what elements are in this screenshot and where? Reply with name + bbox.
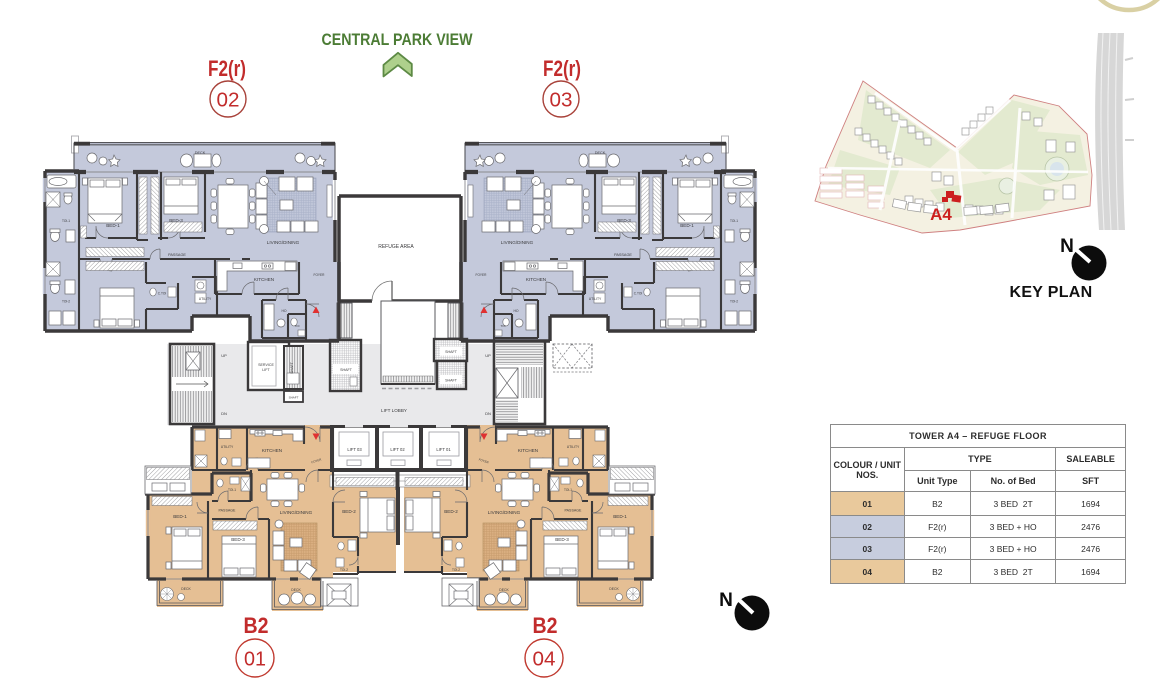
svg-text:UTILITY: UTILITY bbox=[567, 445, 580, 449]
svg-text:LIFT 02: LIFT 02 bbox=[390, 447, 405, 452]
svg-text:BED-1: BED-1 bbox=[680, 223, 694, 228]
svg-text:KITCHEN: KITCHEN bbox=[254, 277, 274, 282]
svg-text:TOI-2: TOI-2 bbox=[730, 300, 738, 304]
svg-text:PASSAGE: PASSAGE bbox=[219, 509, 237, 513]
svg-text:CENTRAL PARK VIEW: CENTRAL PARK VIEW bbox=[322, 30, 474, 49]
svg-text:UTILITY: UTILITY bbox=[221, 445, 234, 449]
svg-text:DN: DN bbox=[485, 411, 491, 416]
svg-text:TOI-2: TOI-2 bbox=[452, 568, 460, 572]
svg-text:REFUGE AREA: REFUGE AREA bbox=[378, 244, 414, 250]
svg-text:F2(r): F2(r) bbox=[208, 56, 246, 81]
svg-text:SHAFT: SHAFT bbox=[340, 368, 353, 372]
svg-text:TOI-2: TOI-2 bbox=[62, 300, 70, 304]
svg-text:B2: B2 bbox=[244, 613, 269, 638]
svg-text:SHAFT: SHAFT bbox=[290, 361, 294, 374]
svg-text:TOI: TOI bbox=[295, 324, 300, 328]
svg-text:PASSAGE: PASSAGE bbox=[614, 253, 632, 257]
svg-text:BED-1: BED-1 bbox=[106, 223, 120, 228]
svg-text:LIFT LOBBY: LIFT LOBBY bbox=[381, 408, 407, 413]
svg-text:N: N bbox=[719, 590, 733, 611]
svg-text:DECK: DECK bbox=[595, 151, 606, 155]
svg-text:LIFT: LIFT bbox=[262, 368, 270, 372]
svg-text:SERVICE: SERVICE bbox=[258, 363, 274, 367]
svg-text:UTILITY: UTILITY bbox=[589, 297, 602, 301]
svg-text:N: N bbox=[1060, 236, 1074, 257]
svg-text:LIFT 01: LIFT 01 bbox=[436, 447, 451, 452]
svg-text:LIVING/DINING: LIVING/DINING bbox=[501, 240, 534, 245]
svg-text:C.TOI: C.TOI bbox=[158, 292, 167, 296]
svg-text:BED-1: BED-1 bbox=[613, 514, 627, 519]
svg-text:BED-2: BED-2 bbox=[342, 509, 356, 514]
svg-text:DECK: DECK bbox=[609, 587, 619, 591]
svg-text:UP: UP bbox=[221, 353, 227, 358]
svg-text:SHAFT: SHAFT bbox=[289, 396, 299, 400]
svg-text:B2: B2 bbox=[533, 613, 558, 638]
svg-text:BED-2: BED-2 bbox=[444, 509, 458, 514]
svg-text:DN: DN bbox=[221, 411, 227, 416]
svg-text:BED-3: BED-3 bbox=[617, 218, 631, 223]
svg-text:KITCHEN: KITCHEN bbox=[518, 448, 538, 453]
svg-text:TOI-2: TOI-2 bbox=[340, 568, 348, 572]
svg-text:HO: HO bbox=[513, 309, 518, 313]
svg-text:01: 01 bbox=[244, 649, 266, 671]
svg-text:LIVING/DINING: LIVING/DINING bbox=[488, 510, 521, 515]
svg-text:TOI-1: TOI-1 bbox=[564, 488, 572, 492]
svg-text:KITCHEN: KITCHEN bbox=[526, 277, 546, 282]
svg-text:BED-1: BED-1 bbox=[173, 514, 187, 519]
svg-text:UP: UP bbox=[485, 353, 491, 358]
svg-text:PASSAGE: PASSAGE bbox=[168, 253, 186, 257]
svg-text:BED-3: BED-3 bbox=[169, 218, 183, 223]
svg-text:DECK: DECK bbox=[181, 587, 191, 591]
svg-text:SHAFT: SHAFT bbox=[445, 379, 458, 383]
svg-text:TOI-1: TOI-1 bbox=[62, 219, 70, 223]
svg-text:TOI-1: TOI-1 bbox=[730, 219, 738, 223]
svg-text:PASSAGE: PASSAGE bbox=[565, 509, 583, 513]
svg-text:TOI-1: TOI-1 bbox=[228, 488, 236, 492]
svg-text:BED-3: BED-3 bbox=[555, 537, 569, 542]
svg-text:LIVING/DINING: LIVING/DINING bbox=[280, 510, 313, 515]
svg-text:KITCHEN: KITCHEN bbox=[262, 448, 282, 453]
svg-text:FOYER: FOYER bbox=[476, 273, 488, 277]
svg-text:TOI: TOI bbox=[501, 324, 506, 328]
svg-text:A4: A4 bbox=[930, 205, 952, 224]
svg-text:SHAFT: SHAFT bbox=[445, 350, 458, 354]
svg-text:UTILITY: UTILITY bbox=[199, 297, 212, 301]
svg-text:04: 04 bbox=[533, 649, 556, 671]
svg-text:FOYER: FOYER bbox=[314, 273, 326, 277]
svg-text:LIVING/DINING: LIVING/DINING bbox=[267, 240, 300, 245]
svg-text:HO: HO bbox=[281, 309, 286, 313]
svg-text:F2(r): F2(r) bbox=[543, 56, 581, 81]
svg-text:DECK: DECK bbox=[291, 588, 301, 592]
svg-text:DECK: DECK bbox=[195, 151, 206, 155]
svg-text:LIFT 03: LIFT 03 bbox=[347, 447, 362, 452]
svg-text:DECK: DECK bbox=[499, 588, 509, 592]
svg-text:KEY PLAN: KEY PLAN bbox=[1009, 284, 1092, 301]
svg-text:02: 02 bbox=[217, 90, 240, 112]
svg-text:03: 03 bbox=[550, 90, 573, 112]
svg-text:BED-3: BED-3 bbox=[231, 537, 245, 542]
svg-text:C.TOI: C.TOI bbox=[634, 292, 643, 296]
